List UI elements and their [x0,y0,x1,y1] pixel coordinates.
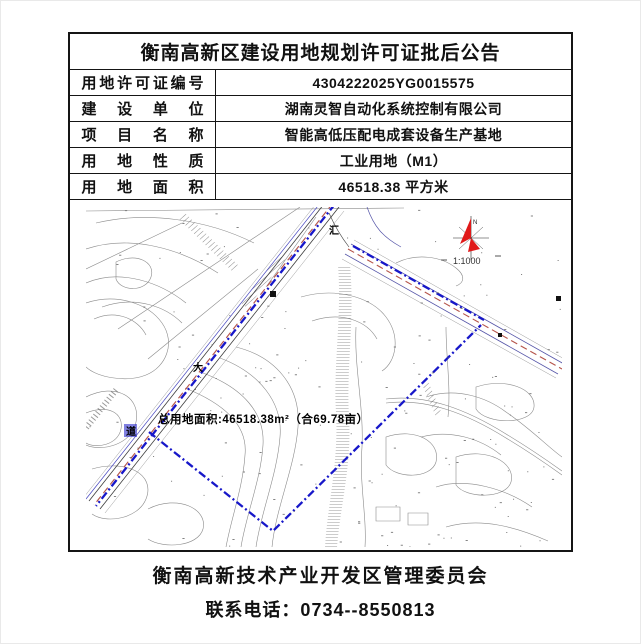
vegetation-dots [90,210,561,547]
cadastral-map: N 1:1000 总用地面积:46518.38m²（合69.78亩） 汇 大 道 [86,207,562,547]
north-arrow-icon: N [453,216,489,260]
permit-table: 衡南高新区建设用地规划许可证批后公告 用地许可证编号 4304222025YG0… [68,32,573,552]
table-row: 用地性质 工业用地（M1） [70,148,571,174]
row-value: 工业用地（M1） [216,148,571,173]
row-value: 湖南灵智自动化系统控制有限公司 [216,96,571,121]
row-label: 用地性质 [70,148,216,173]
row-value: 智能高低压配电成套设备生产基地 [216,122,571,147]
road-name-char: 汇 [329,224,339,237]
north-label: N [473,220,477,226]
total-area-label: 总用地面积:46518.38m²（合69.78亩） [158,412,369,426]
issuing-authority: 衡南高新技术产业开发区管理委员会 [0,561,641,588]
row-value: 46518.38 平方米 [216,174,571,199]
row-label: 建设单位 [70,96,216,121]
table-row: 用地许可证编号 4304222025YG0015575 [70,70,571,96]
site-map-cell: N 1:1000 总用地面积:46518.38m²（合69.78亩） 汇 大 道 [70,200,571,550]
contour-lines [86,207,562,547]
row-label-text: 项目名称 [82,124,204,145]
announcement-page: { "page": { "title": "衡南高新区建设用地规划许可证批后公告… [0,0,641,644]
row-label: 用地许可证编号 [70,70,216,95]
row-label: 用地面积 [70,174,216,199]
row-value: 4304222025YG0015575 [216,70,571,95]
row-label-text: 用地面积 [82,176,204,197]
contact-phone: 联系电话：0734--8550813 [0,596,641,622]
road-name-char: 道 [126,425,136,438]
page-title: 衡南高新区建设用地规划许可证批后公告 [70,34,571,70]
table-row: 用地面积 46518.38 平方米 [70,174,571,200]
row-label-text: 建设单位 [82,98,204,119]
site-boundary [96,207,484,531]
row-label-text: 用地许可证编号 [82,72,204,93]
road-name-char: 大 [193,361,203,374]
map-scale-label: 1:1000 [453,256,481,266]
table-row: 建设单位 湖南灵智自动化系统控制有限公司 [70,96,571,122]
row-label: 项目名称 [70,122,216,147]
table-row: 项目名称 智能高低压配电成套设备生产基地 [70,122,571,148]
embankment-ticks [86,390,116,428]
survey-marks [270,291,561,337]
row-label-text: 用地性质 [82,150,204,171]
